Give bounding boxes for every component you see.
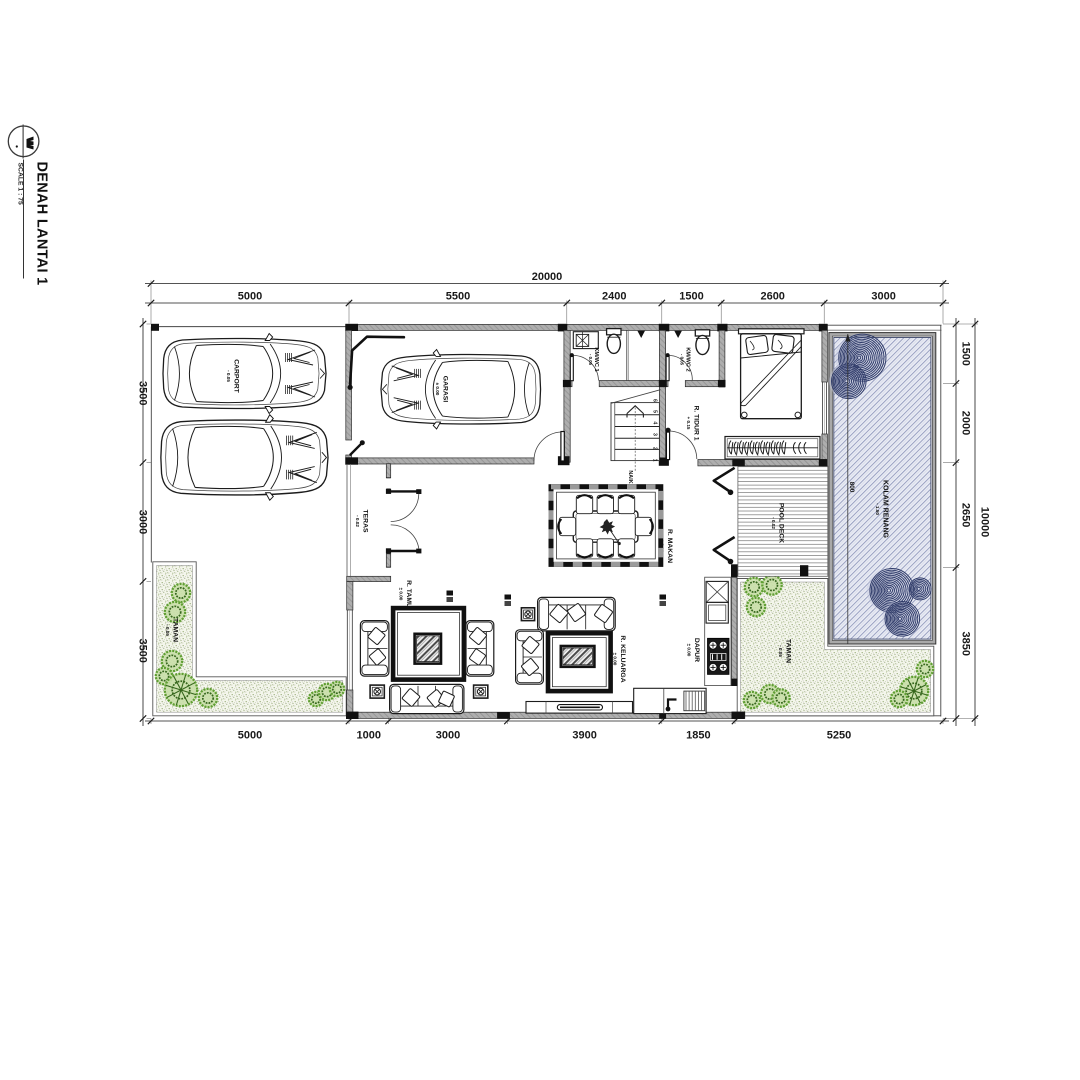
svg-text:3900: 3900 (572, 730, 596, 742)
svg-text:3000: 3000 (436, 730, 460, 742)
svg-text:R. KELUARGA: R. KELUARGA (619, 635, 626, 682)
svg-text:800: 800 (848, 482, 855, 493)
svg-text:TERAS: TERAS (362, 509, 369, 533)
svg-text:2400: 2400 (602, 291, 626, 303)
svg-text:KOLAM RENANG: KOLAM RENANG (882, 480, 889, 538)
svg-text:+ 0.15: + 0.15 (686, 417, 691, 430)
svg-text:- 0.05: - 0.05 (165, 624, 170, 636)
svg-text:TAMAN: TAMAN (785, 639, 792, 663)
svg-text:CARPORT: CARPORT (233, 359, 240, 393)
svg-text:2600: 2600 (760, 291, 784, 303)
svg-text:5250: 5250 (827, 730, 851, 742)
svg-text:2: 2 (652, 447, 658, 450)
svg-text:NAIK: NAIK (627, 470, 633, 483)
svg-text:2650: 2650 (960, 503, 972, 527)
svg-text:1: 1 (652, 459, 658, 462)
svg-text:1500: 1500 (960, 341, 972, 365)
svg-text:DAPUR: DAPUR (693, 638, 700, 662)
svg-text:3500: 3500 (137, 638, 149, 662)
svg-text:6: 6 (652, 399, 658, 402)
svg-text:R. TAMU: R. TAMU (405, 580, 412, 608)
svg-text:- 0.05: - 0.05 (778, 645, 783, 657)
svg-text:5000: 5000 (238, 730, 262, 742)
svg-text:R. TIDUR 1: R. TIDUR 1 (693, 405, 700, 440)
svg-text:2000: 2000 (960, 411, 972, 435)
svg-text:- 1.50: - 1.50 (875, 503, 880, 515)
svg-text:3: 3 (652, 433, 658, 436)
svg-text:20000: 20000 (532, 271, 563, 283)
svg-text:3000: 3000 (871, 291, 895, 303)
svg-text:KM/WC 2: KM/WC 2 (685, 347, 691, 371)
svg-text:GARASI: GARASI (442, 376, 449, 403)
svg-text:- 0.05: - 0.05 (588, 354, 593, 366)
svg-text:TAMAN: TAMAN (172, 618, 179, 642)
svg-text:± 0.00: ± 0.00 (613, 653, 618, 666)
svg-text:± 0.00: ± 0.00 (435, 383, 440, 396)
svg-text:3500: 3500 (137, 381, 149, 405)
svg-text:1000: 1000 (357, 730, 381, 742)
svg-text:- 0.02: - 0.02 (355, 515, 360, 527)
svg-text:4: 4 (652, 421, 658, 424)
svg-text:R. MAKAN: R. MAKAN (666, 529, 673, 563)
svg-text:POOL DECK: POOL DECK (778, 503, 785, 543)
svg-text:- 0.05: - 0.05 (679, 354, 684, 366)
svg-text:5500: 5500 (446, 291, 470, 303)
svg-text:- 0.02: - 0.02 (771, 517, 776, 529)
svg-text:KM/WC 1: KM/WC 1 (593, 347, 599, 371)
svg-text:- 0.05: - 0.05 (226, 370, 231, 382)
svg-text:5000: 5000 (238, 291, 262, 303)
svg-text:3000: 3000 (137, 510, 149, 534)
svg-text:10000: 10000 (979, 507, 991, 538)
svg-text:1850: 1850 (686, 730, 710, 742)
svg-text:1500: 1500 (679, 291, 703, 303)
svg-text:± 0.00: ± 0.00 (687, 644, 692, 657)
svg-text:SCALE 1 : 75: SCALE 1 : 75 (17, 163, 24, 206)
svg-text:DENAH LANTAI 1: DENAH LANTAI 1 (34, 162, 50, 286)
svg-text:± 0.00: ± 0.00 (399, 588, 404, 601)
svg-text:3850: 3850 (960, 632, 972, 656)
svg-text:5: 5 (652, 410, 658, 413)
